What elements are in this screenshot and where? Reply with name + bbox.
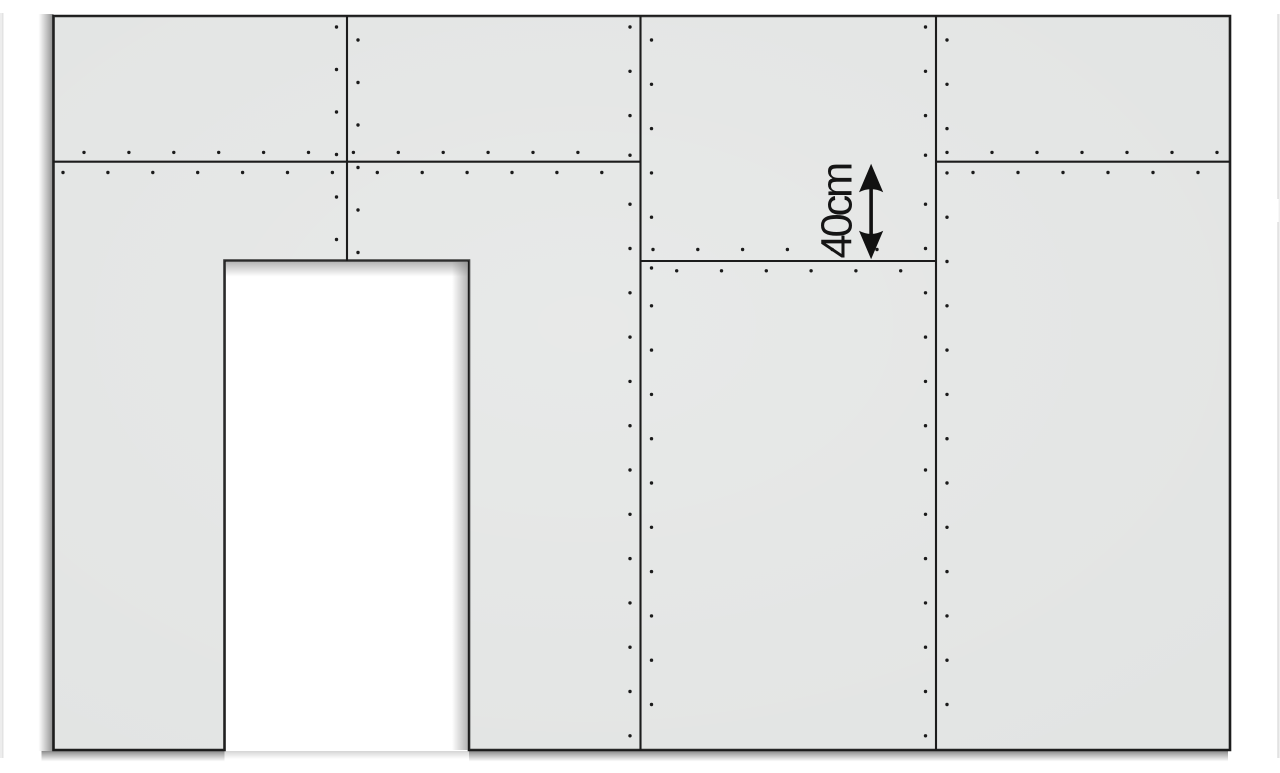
svg-text:40cm: 40cm [814,164,862,259]
